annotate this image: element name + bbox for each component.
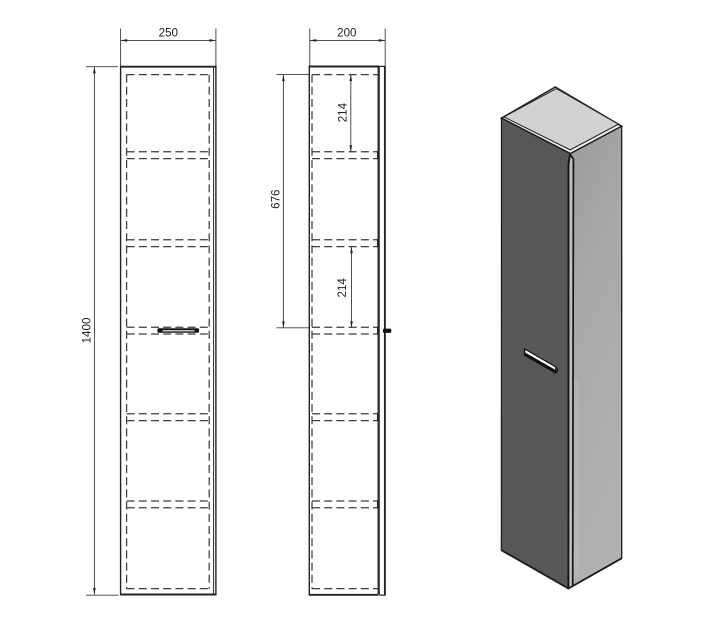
svg-text:214: 214 <box>336 278 349 298</box>
svg-text:250: 250 <box>159 26 178 39</box>
svg-text:1400: 1400 <box>81 318 94 344</box>
svg-text:200: 200 <box>337 26 356 39</box>
svg-text:676: 676 <box>269 190 282 209</box>
svg-text:214: 214 <box>337 102 350 122</box>
